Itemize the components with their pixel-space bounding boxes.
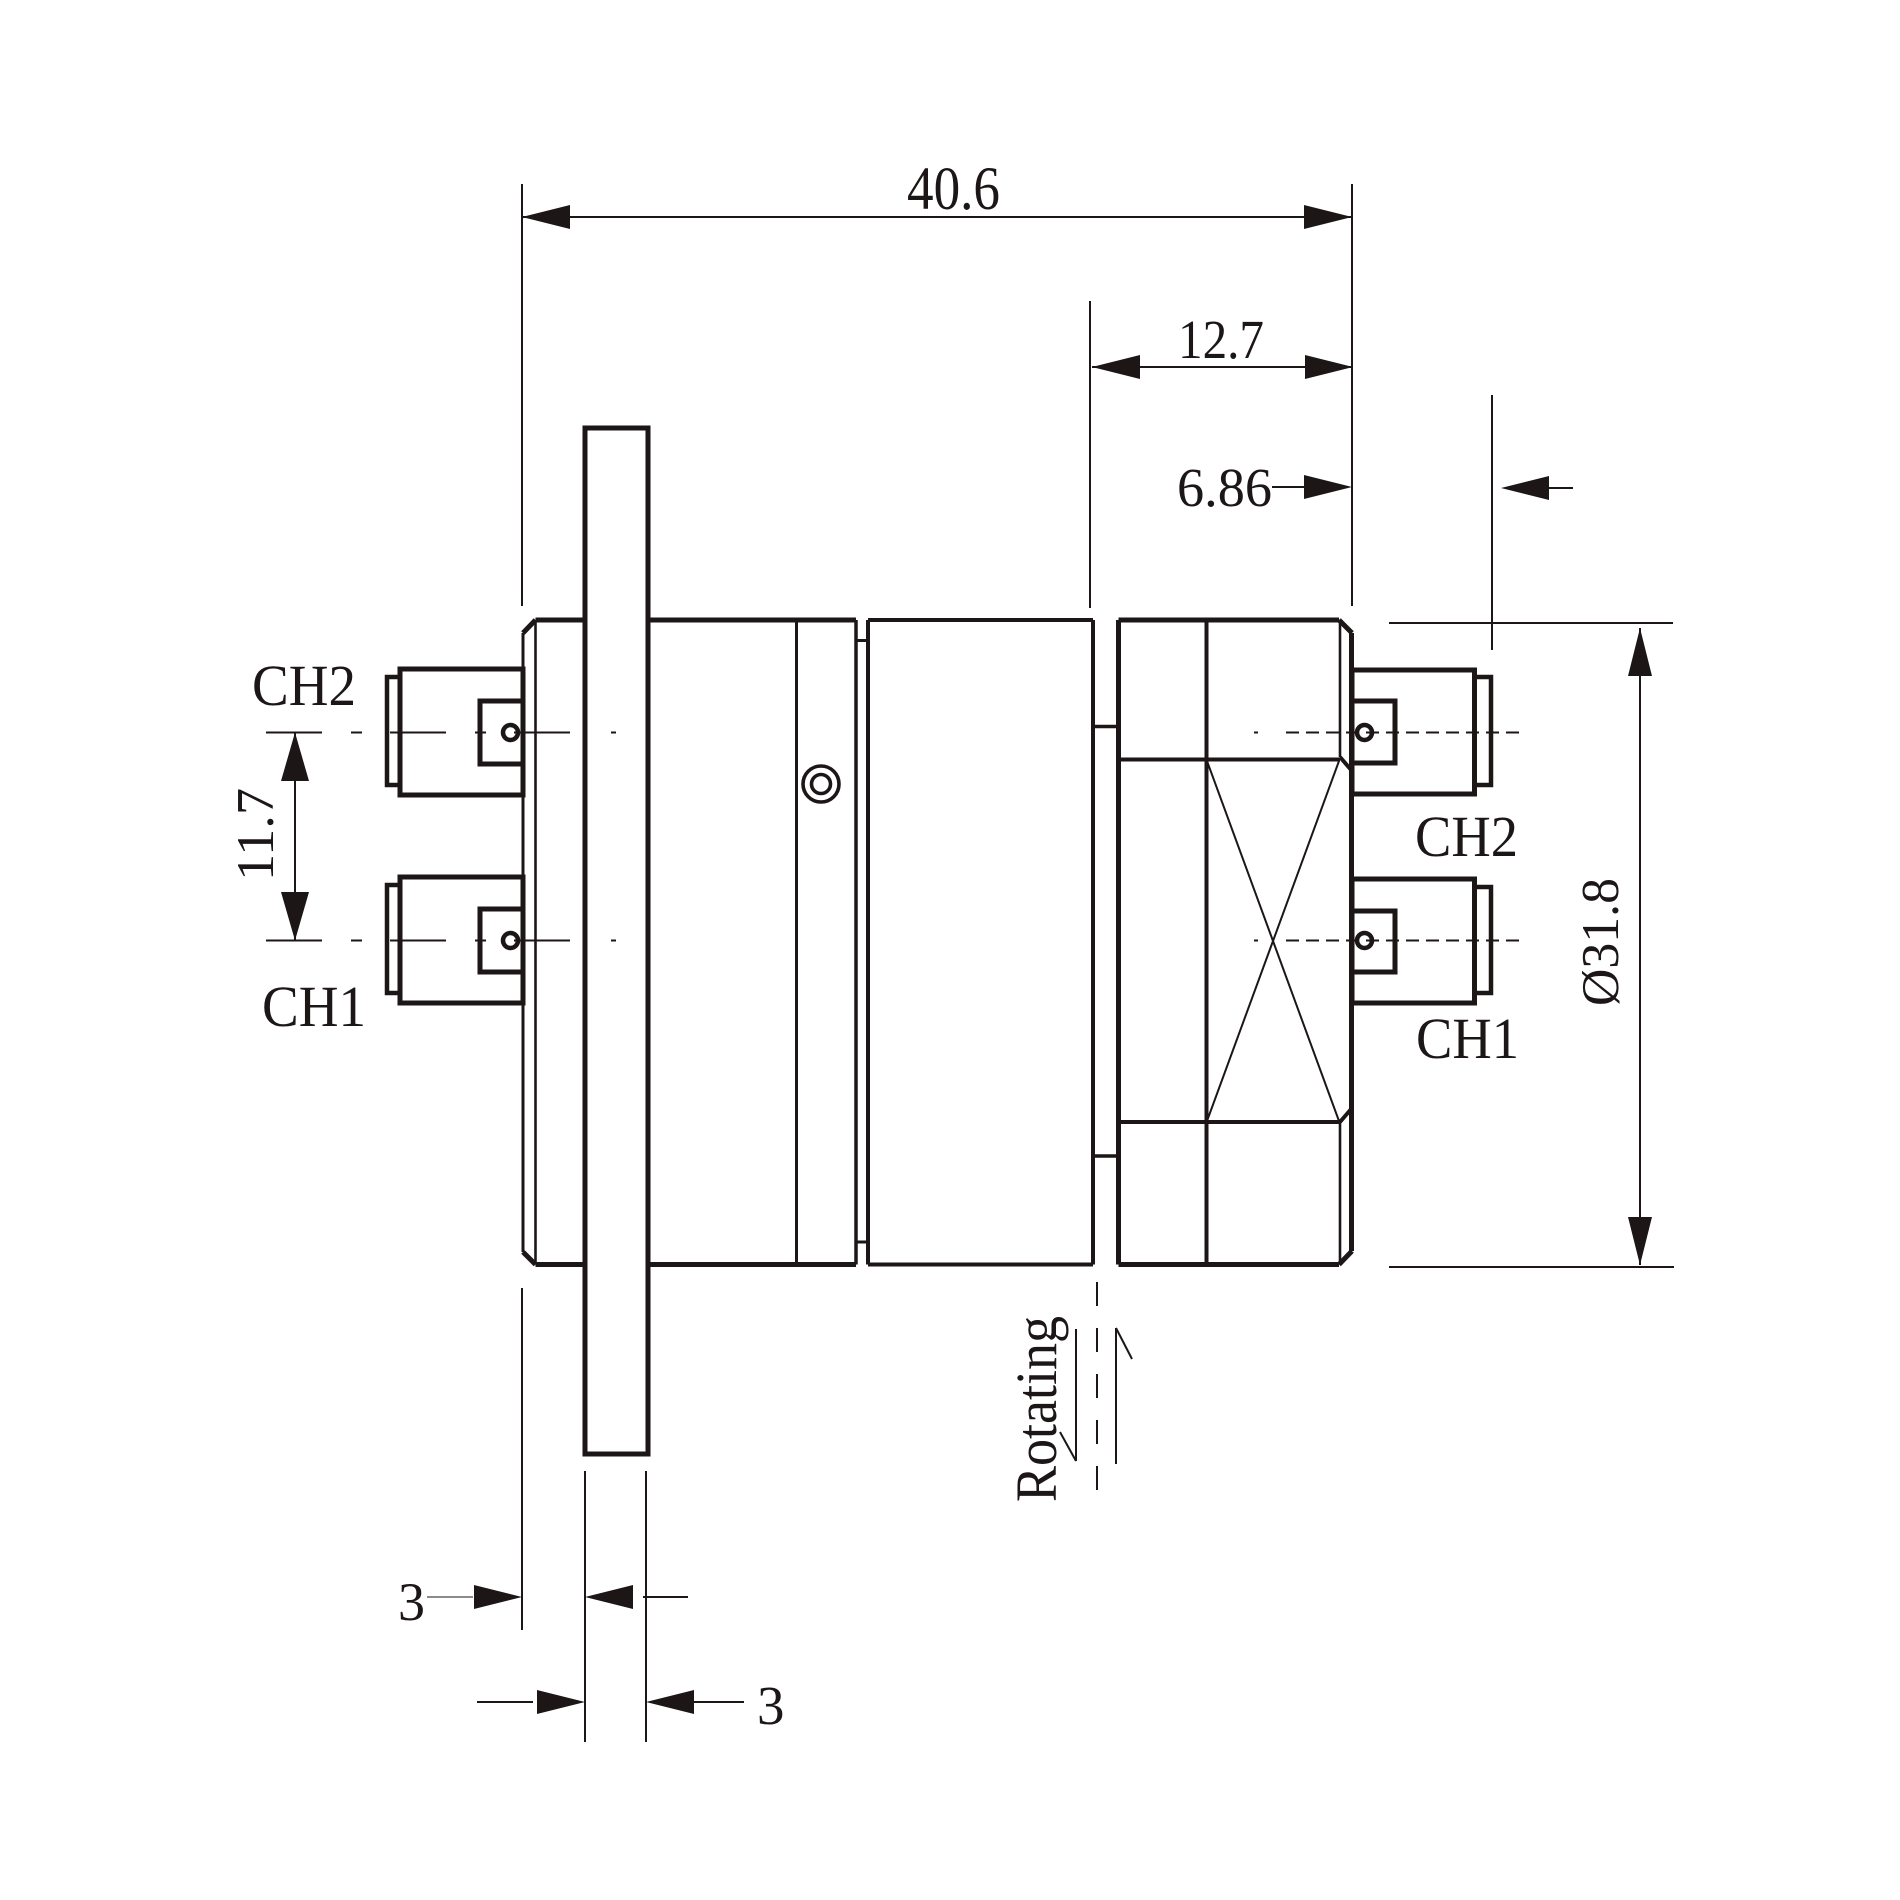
svg-text:3: 3 <box>398 1572 425 1632</box>
svg-text:6.86: 6.86 <box>1177 457 1272 518</box>
svg-text:12.7: 12.7 <box>1178 309 1264 370</box>
svg-text:40.6: 40.6 <box>907 156 1000 223</box>
svg-text:11.7: 11.7 <box>227 788 285 881</box>
svg-text:CH1: CH1 <box>262 974 366 1039</box>
svg-text:CH1: CH1 <box>1416 1006 1519 1071</box>
svg-text:3: 3 <box>757 1675 785 1736</box>
svg-text:Ø31.8: Ø31.8 <box>1572 878 1630 1006</box>
svg-text:CH2: CH2 <box>252 653 356 718</box>
svg-text:Rotating: Rotating <box>1004 1316 1069 1502</box>
svg-text:CH2: CH2 <box>1415 804 1518 869</box>
